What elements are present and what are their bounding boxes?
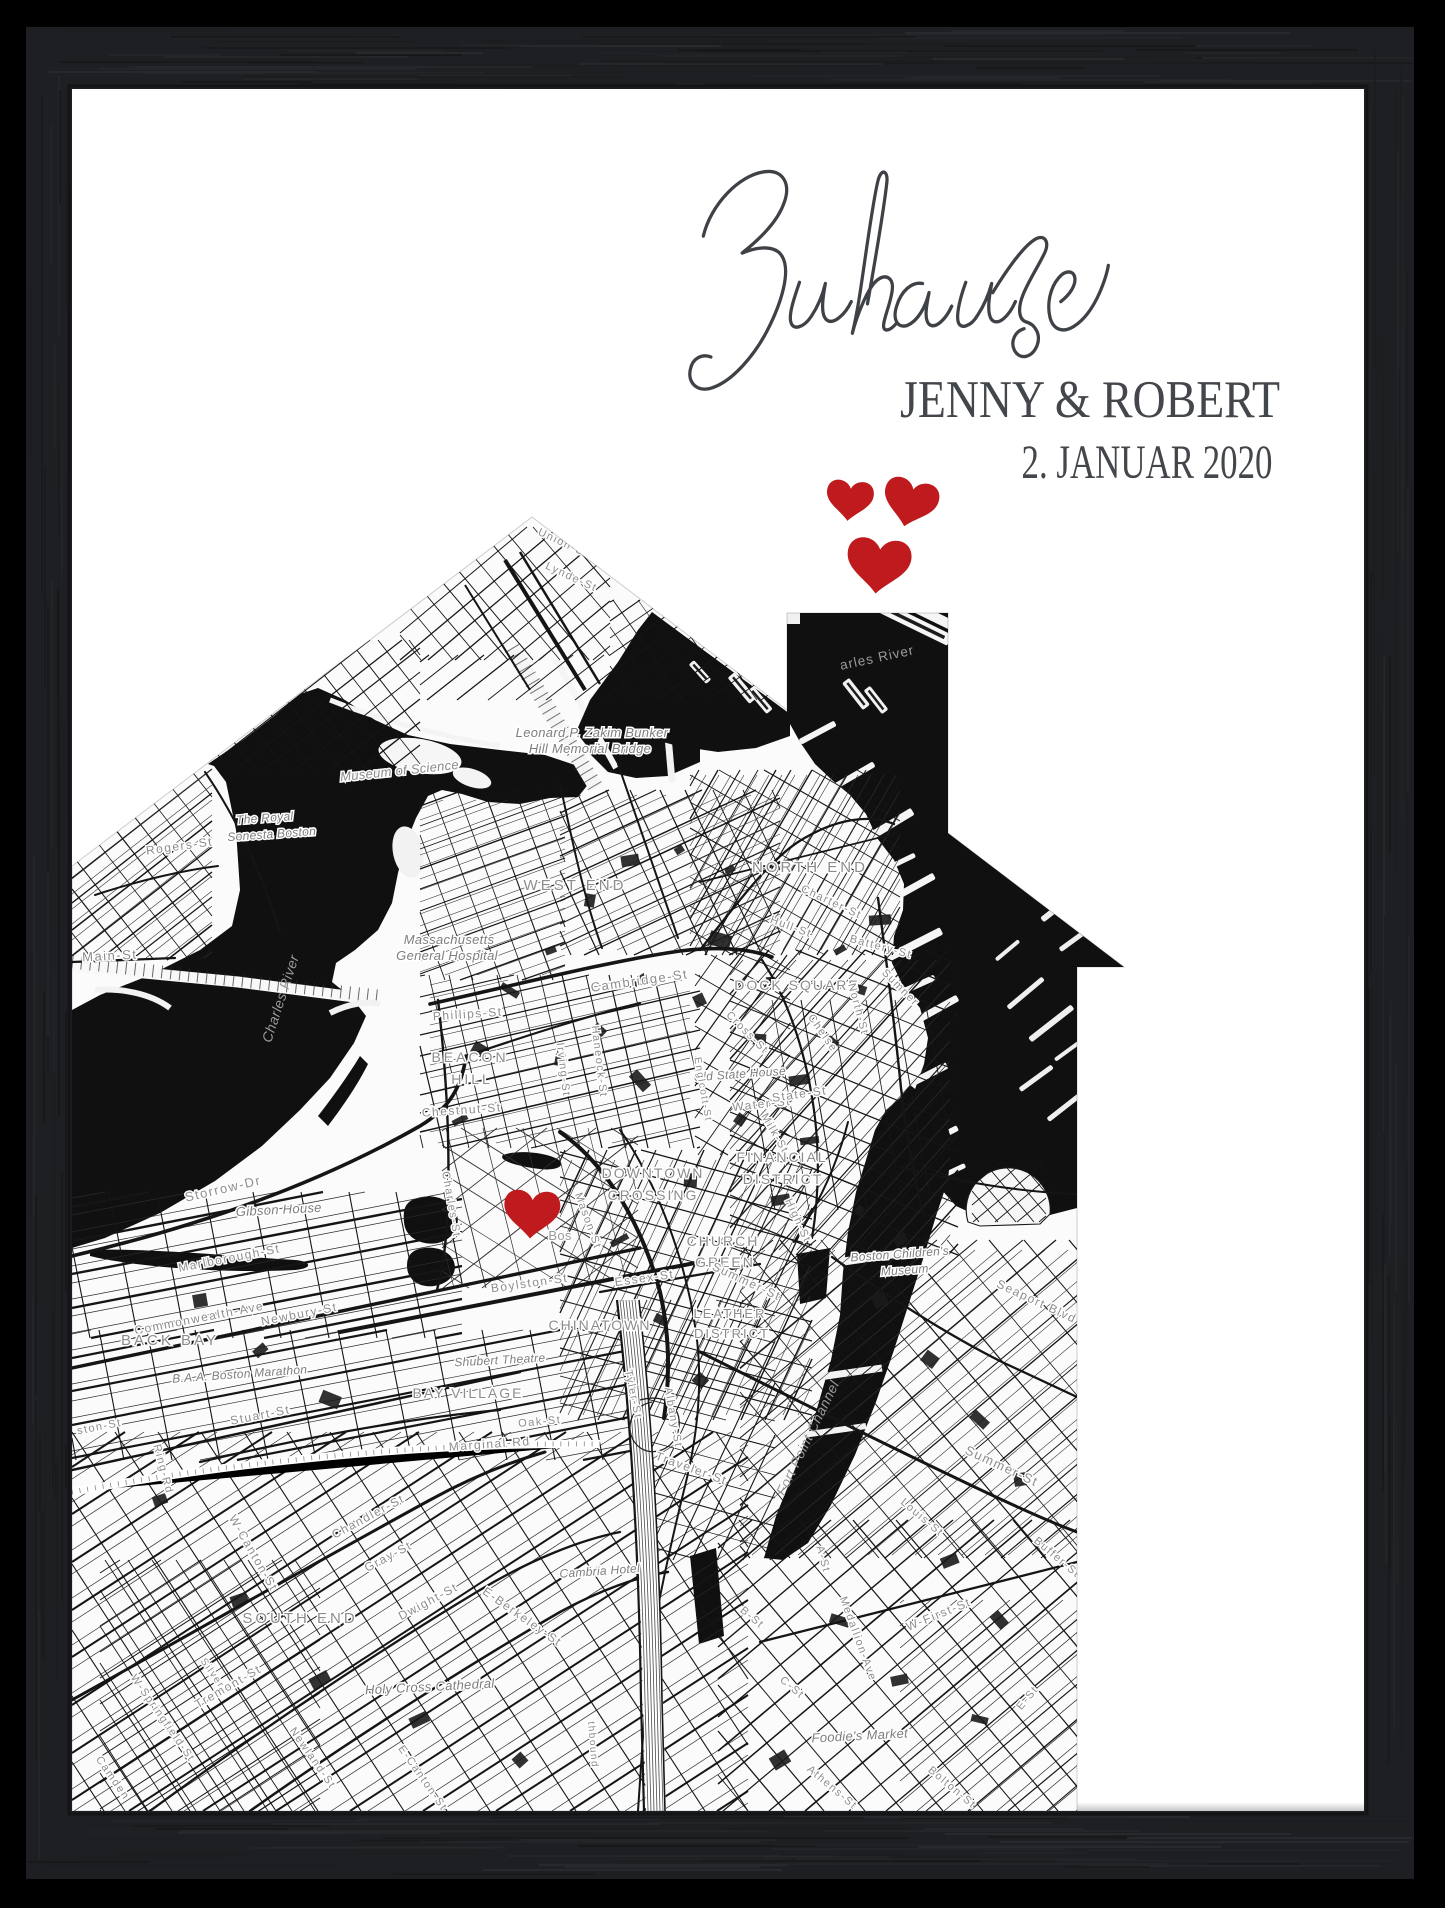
svg-text:JENNY & ROBERT: JENNY & ROBERT [900, 371, 1280, 429]
svg-text:DOWNTOWN: DOWNTOWN [602, 1165, 705, 1181]
svg-text:CHINATOWN: CHINATOWN [548, 1317, 651, 1333]
svg-text:BACK BAY: BACK BAY [121, 1332, 219, 1349]
svg-text:FINANCIAL: FINANCIAL [736, 1149, 827, 1165]
svg-text:Leonard P. Zakim Bunker: Leonard P. Zakim Bunker [516, 725, 669, 740]
svg-text:BAY VILLAGE: BAY VILLAGE [413, 1385, 524, 1401]
svg-text:Hill Memorial Bridge: Hill Memorial Bridge [529, 741, 651, 756]
svg-text:WEST END: WEST END [524, 877, 627, 894]
svg-text:SOUTH END: SOUTH END [242, 1610, 357, 1627]
svg-text:Massachusetts: Massachusetts [404, 932, 495, 947]
svg-text:CROSSING: CROSSING [608, 1187, 699, 1203]
svg-text:DISTRICT: DISTRICT [743, 1171, 824, 1187]
svg-text:LEATHER: LEATHER [694, 1306, 767, 1321]
svg-text:DISTRICT: DISTRICT [694, 1326, 770, 1341]
svg-text:General Hospital: General Hospital [396, 948, 498, 963]
svg-text:DOCK SQUARE: DOCK SQUARE [734, 977, 859, 993]
svg-text:2. JANUAR 2020: 2. JANUAR 2020 [1022, 436, 1273, 489]
svg-text:Bos: Bos [548, 1228, 572, 1243]
svg-text:HILL: HILL [451, 1071, 493, 1087]
svg-text:NORTH END: NORTH END [752, 859, 868, 876]
svg-text:BEACON: BEACON [431, 1049, 508, 1065]
svg-text:Main-St: Main-St [82, 947, 138, 965]
svg-text:CHURCH: CHURCH [687, 1233, 760, 1249]
